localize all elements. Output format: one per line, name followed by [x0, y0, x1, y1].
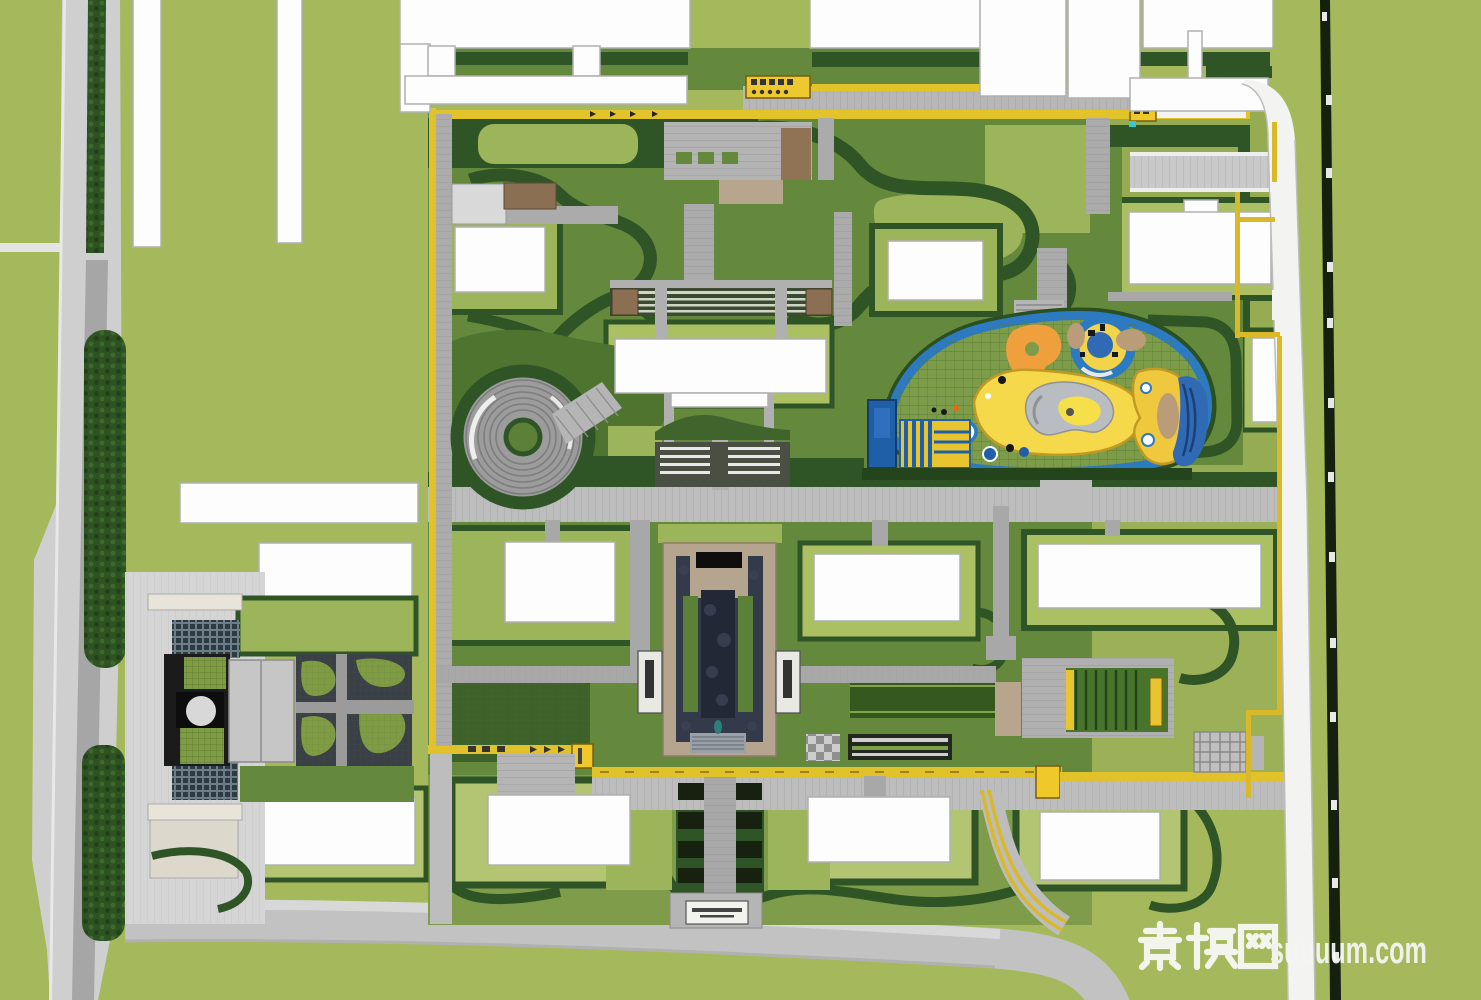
svg-text:suuuum.com: suuuum.com	[1270, 930, 1427, 972]
